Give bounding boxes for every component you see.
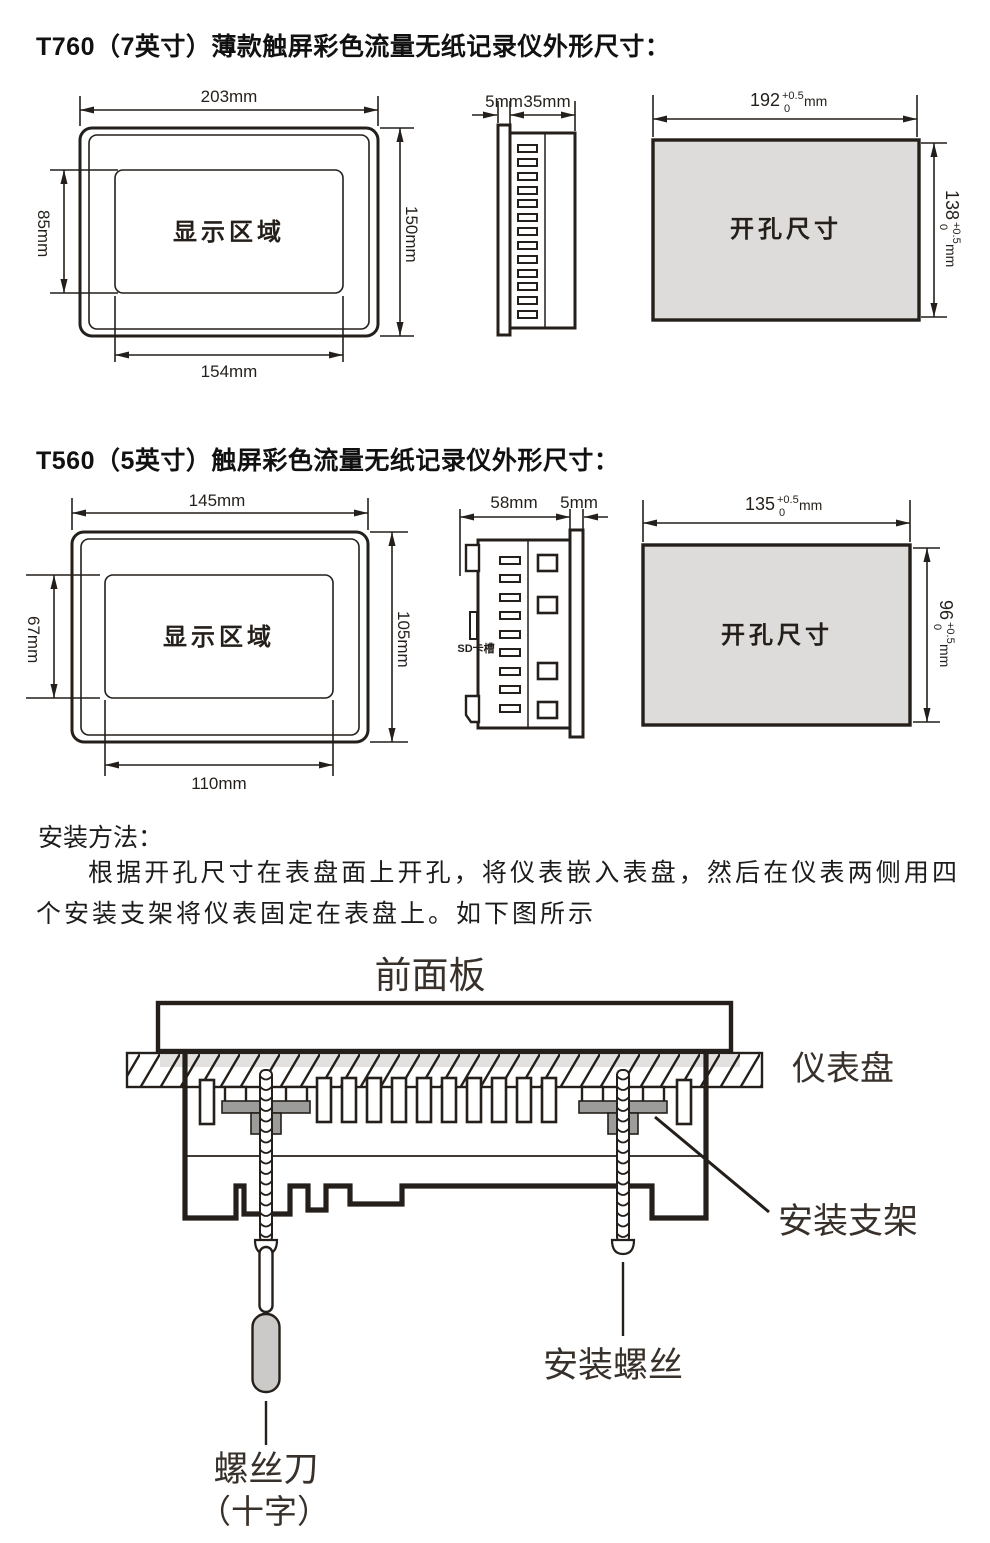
t760-cutout-width-dim: 192+0.50mm <box>750 90 827 115</box>
t760-cutout-label: 开孔尺寸 <box>730 216 842 243</box>
screwdriver-type-label: （十字） <box>198 1494 330 1531</box>
screwdriver-label: 螺丝刀 <box>213 1450 318 1489</box>
t560-depth-dim: 58mm <box>490 493 537 512</box>
installation-diagram: 前面板 仪表盘 安装支架 安装螺丝 <box>127 955 918 1531</box>
screwdriver <box>253 1247 280 1445</box>
t760-display-area-label: 显示区域 <box>173 219 285 246</box>
instrument-panel-label: 仪表盘 <box>792 1050 894 1088</box>
t760-display-height-dim: 85mm <box>34 210 53 257</box>
t560-cutout-height-dim: 96+0.50mm <box>931 600 956 667</box>
mounting-screw-right <box>612 1070 634 1254</box>
t760-front-view: 显示区域 203mm 85mm 150mm 154mm <box>34 87 421 381</box>
t760-cutout-view: 开孔尺寸 192+0.50mm 138+0.50mm <box>653 90 962 320</box>
sd-card-slot <box>470 612 477 639</box>
diagram-canvas: 显示区域 203mm 85mm 150mm 154mm <box>0 0 990 1543</box>
t760-bezel-dim: 5mm <box>485 92 523 111</box>
t560-height-dim: 105mm <box>394 611 413 668</box>
screwdriver-shaft <box>260 1247 273 1312</box>
bracket-pointer-line <box>655 1117 769 1212</box>
t560-cutout-view: 开孔尺寸 135+0.50mm 96+0.50mm <box>643 494 956 725</box>
t560-side-bezel <box>570 530 583 737</box>
t760-side-bezel <box>498 125 510 335</box>
manual-page: T760（7英寸）薄款触屏彩色流量无纸记录仪外形尺寸： T560（5英寸）触屏彩… <box>0 0 990 1543</box>
bracket-label: 安装支架 <box>778 1202 918 1241</box>
t560-display-height-dim: 67mm <box>24 616 43 663</box>
t560-display-area-label: 显示区域 <box>163 624 275 651</box>
sd-slot-label: SD卡槽 <box>457 641 494 655</box>
t560-cutout-label: 开孔尺寸 <box>721 622 833 649</box>
screw-label: 安装螺丝 <box>543 1346 683 1385</box>
t560-cutout-width-dim: 135+0.50mm <box>745 494 822 519</box>
screwdriver-handle <box>253 1314 280 1392</box>
t560-width-dim: 145mm <box>189 491 246 510</box>
t760-depth-dim: 35mm <box>523 92 570 111</box>
front-panel <box>158 1003 731 1051</box>
t760-display-width-dim: 154mm <box>201 362 258 381</box>
t560-side-view: SD卡槽 58mm 5mm <box>457 493 608 737</box>
t760-side-view: 5mm 35mm <box>472 92 575 335</box>
t560-front-view: 显示区域 145mm 67mm 105mm 110mm <box>24 491 413 793</box>
t760-cutout-height-dim: 138+0.50mm <box>937 190 962 267</box>
t560-display-width-dim: 110mm <box>191 774 246 793</box>
t760-width-dim: 203mm <box>201 87 258 106</box>
front-panel-label: 前面板 <box>375 955 486 997</box>
t760-height-dim: 150mm <box>402 206 421 263</box>
t560-bezel-dim: 5mm <box>560 493 598 512</box>
mounting-screw-left <box>255 1070 277 1254</box>
